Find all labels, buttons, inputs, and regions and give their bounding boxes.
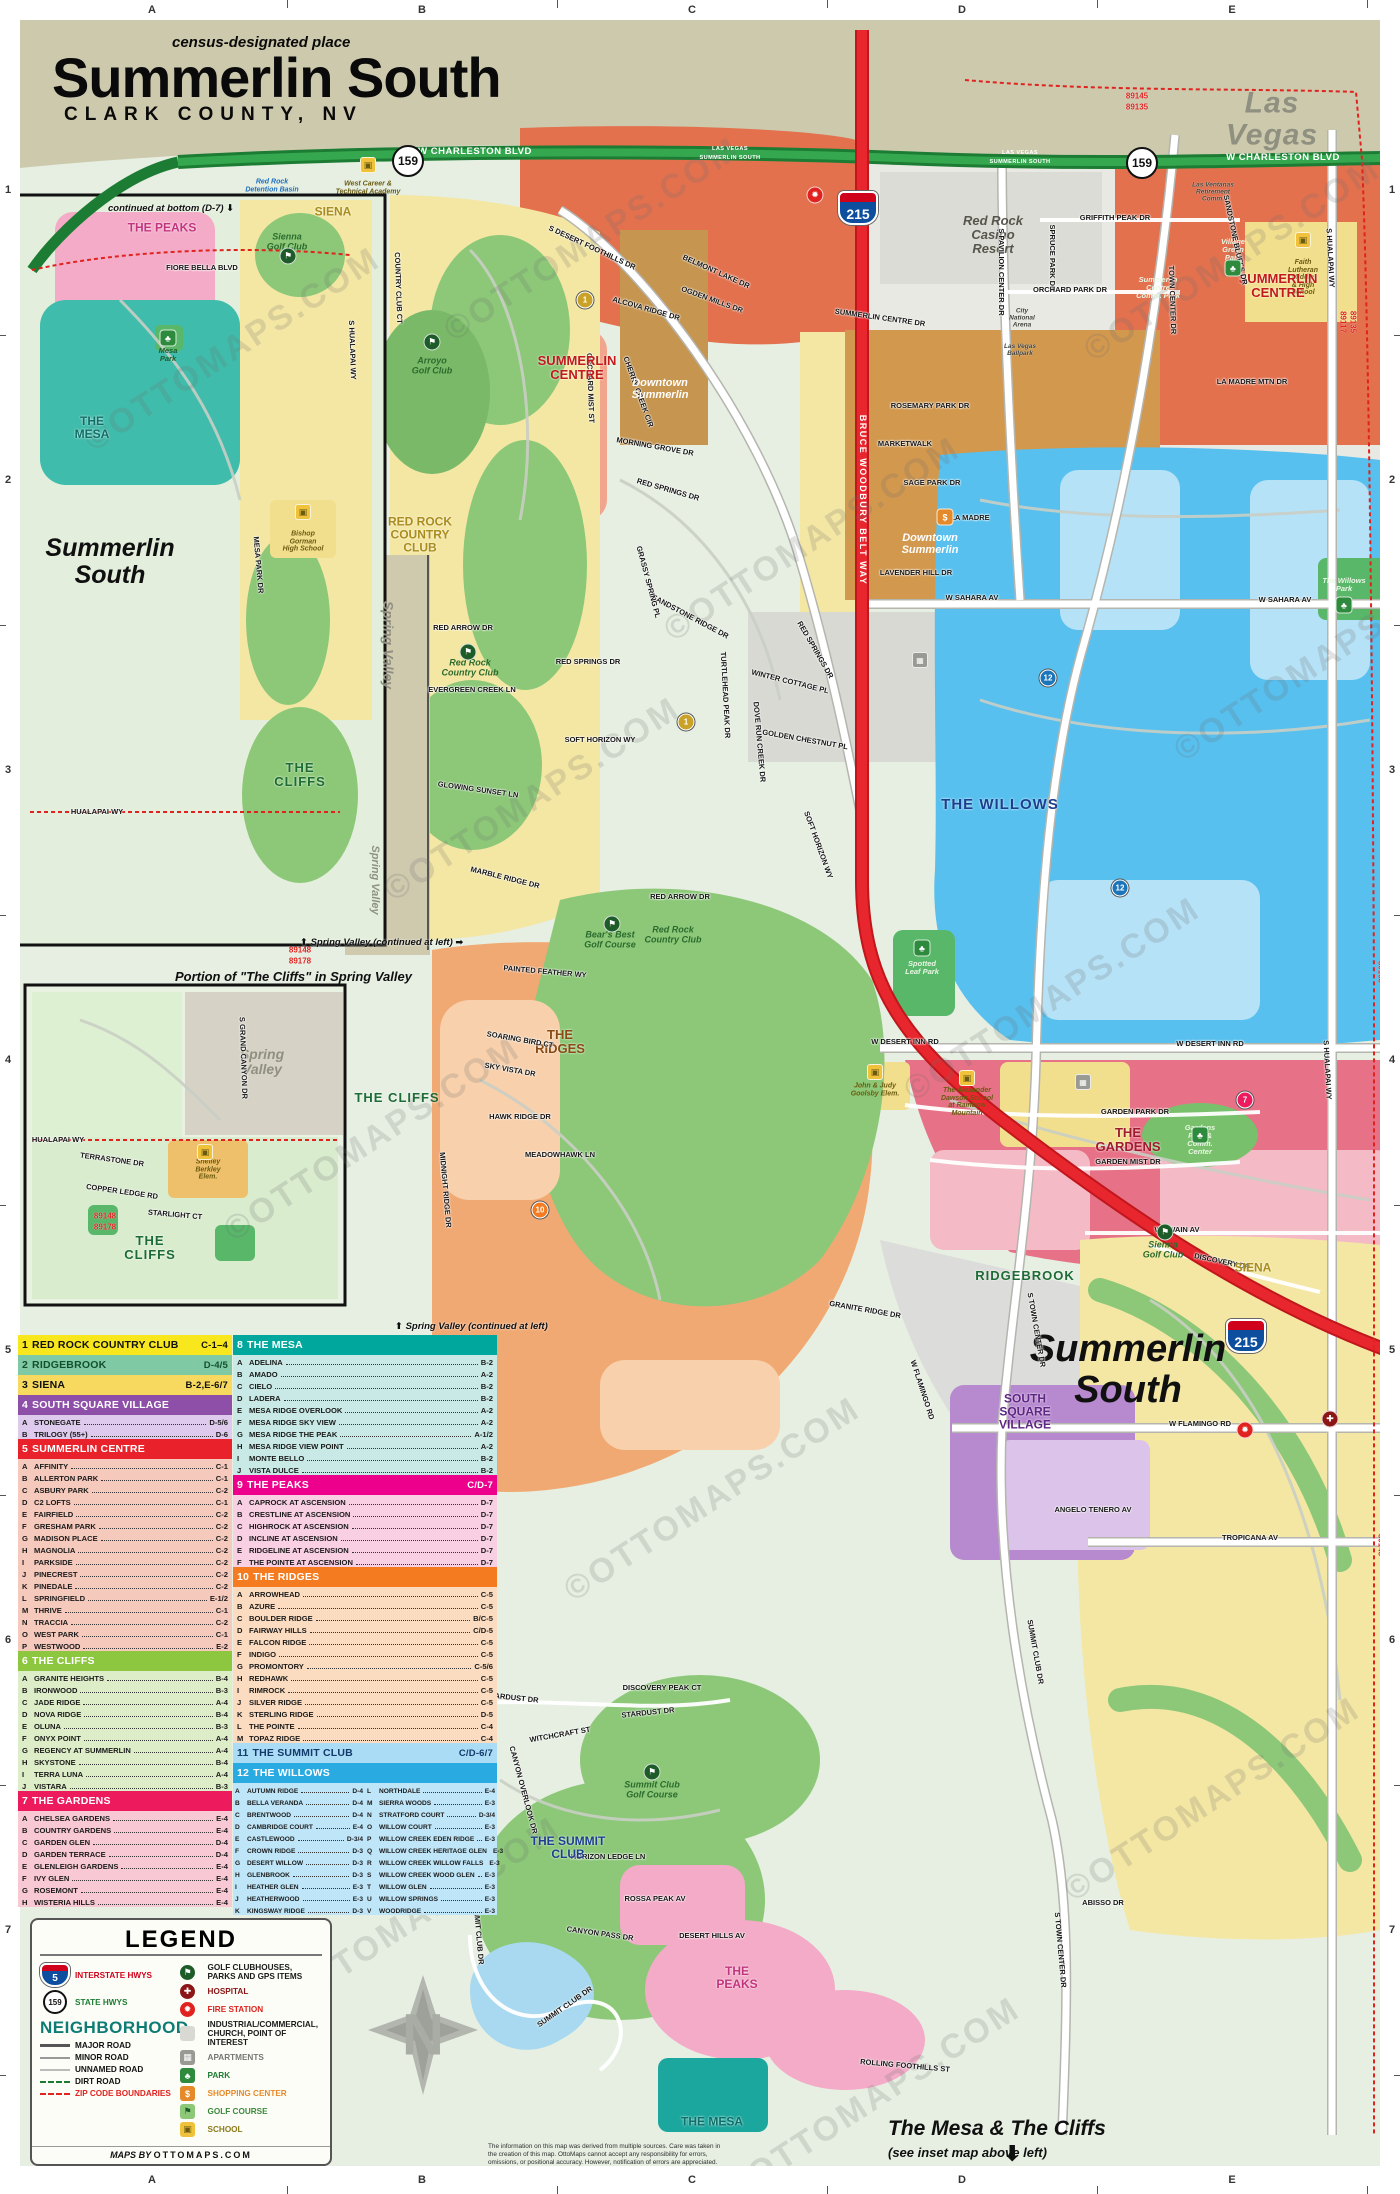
index-row: GPROMONTORYC-5/6 — [233, 1659, 497, 1671]
grid-number: 6 — [1389, 1634, 1395, 1646]
index-row: CJADE RIDGEA-4 — [18, 1695, 232, 1707]
compass-n-label: N — [402, 2002, 444, 2069]
index-row: GMADISON PLACEC-2 — [18, 1531, 232, 1543]
grid-number: 5 — [5, 1344, 11, 1356]
index-row: ACAPROCK AT ASCENSIOND-7 — [233, 1495, 497, 1507]
legend-item: ⚑GOLF COURSE — [173, 2104, 322, 2119]
legend-neighborhood-label: NEIGHBORHOOD — [40, 2018, 173, 2038]
index-row: EGLENLEIGH GARDENSE-4 — [18, 1859, 232, 1871]
grid-letter: A — [148, 4, 156, 16]
index-header: 2RIDGEBROOKD-4/5 — [18, 1355, 232, 1375]
legend-footer-brand: OTTOMAPS.COM — [154, 2150, 252, 2160]
index-row: FMESA RIDGE SKY VIEWA-2 — [233, 1415, 497, 1427]
legend-item: ♣PARK — [173, 2068, 322, 2083]
index-row: DGARDEN TERRACED-4 — [18, 1847, 232, 1859]
index-row: HREDHAWKC-5 — [233, 1671, 497, 1683]
index-row: HMESA RIDGE VIEW POINTA-2 — [233, 1439, 497, 1451]
index-row: CCIELOB-2 — [233, 1379, 497, 1391]
index-row: FIVY GLENE-4 — [18, 1871, 232, 1883]
legend-item: UNNAMED ROAD — [40, 2065, 173, 2074]
index-row: IHEATHER GLENE-3 — [233, 1879, 365, 1891]
index-row: EFALCON RIDGEC-5 — [233, 1635, 497, 1647]
index-row: ERIDGELINE AT ASCENSIOND-7 — [233, 1543, 497, 1555]
grid-letter: D — [958, 4, 966, 16]
index-row: JHEATHERWOODE-3 — [233, 1891, 365, 1903]
index-row: JPINECRESTC-2 — [18, 1567, 232, 1579]
index-header: 9THE PEAKSC/D-7 — [233, 1475, 497, 1495]
index-header: 3SIENAB-2,E-6/7 — [18, 1375, 232, 1395]
index-header: 8THE MESA — [233, 1335, 497, 1355]
index-block-5: 5SUMMERLIN CENTREAAFFINITYC-1BALLERTON P… — [18, 1439, 232, 1651]
page-title: Summerlin South — [52, 51, 501, 104]
index-block-6: 6THE CLIFFSAGRANITE HEIGHTSB-4BIRONWOODB… — [18, 1651, 232, 1791]
grid-number: 6 — [5, 1634, 11, 1646]
grid-number: 2 — [1389, 474, 1395, 486]
index-row: FINDIGOC-5 — [233, 1647, 497, 1659]
grid-number: 3 — [5, 764, 11, 776]
index-row: CGARDEN GLEND-4 — [18, 1835, 232, 1847]
index-row: ITERRA LUNAA-4 — [18, 1767, 232, 1779]
grid-number: 2 — [5, 474, 11, 486]
index-row: BCOUNTRY GARDENSE-4 — [18, 1823, 232, 1835]
index-row: PWILLOW CREEK EDEN RIDGEE-3 — [365, 1831, 497, 1843]
index-row: BALLERTON PARKC-1 — [18, 1471, 232, 1483]
index-row: AAFFINITYC-1 — [18, 1459, 232, 1471]
index-row: EOLUNAB-3 — [18, 1719, 232, 1731]
index-row: PWESTWOODE-2 — [18, 1639, 232, 1651]
grid-number: 3 — [1389, 764, 1395, 776]
index-row: HMAGNOLIAC-2 — [18, 1543, 232, 1555]
index-column-1: 1RED ROCK COUNTRY CLUBC-1–42RIDGEBROOKD-… — [18, 1335, 232, 1907]
index-column-2: 8THE MESAAADELINAB-2BAMADOA-2CCIELOB-2DL… — [233, 1335, 497, 1915]
index-block-2: 2RIDGEBROOKD-4/5 — [18, 1355, 232, 1375]
map-poster: ©OTTOMAPS.COM©OTTOMAPS.COM©OTTOMAPS.COM©… — [0, 0, 1400, 2194]
index-row: BIRONWOODB-3 — [18, 1683, 232, 1695]
index-block-7: 7THE GARDENSACHELSEA GARDENSE-4BCOUNTRY … — [18, 1791, 232, 1907]
grid-letter: C — [688, 2174, 696, 2186]
index-row: VWOODRIDGEE-3 — [365, 1903, 497, 1915]
grid-letter: E — [1228, 4, 1235, 16]
index-row: UWILLOW SPRINGSE-3 — [365, 1891, 497, 1903]
index-block-4: 4SOUTH SQUARE VILLAGEASTONEGATED-5/6BTRI… — [18, 1395, 232, 1439]
index-row: MSIERRA WOODSE-3 — [365, 1795, 497, 1807]
index-row: CHIGHROCK AT ASCENSIOND-7 — [233, 1519, 497, 1531]
grid-letter: E — [1228, 2174, 1235, 2186]
index-row: DNOVA RIDGEB-4 — [18, 1707, 232, 1719]
legend-title: LEGEND — [40, 1926, 322, 1956]
grid-letter: B — [418, 4, 426, 16]
index-row: KPINEDALEC-2 — [18, 1579, 232, 1591]
index-row: GMESA RIDGE THE PEAKA-1/2 — [233, 1427, 497, 1439]
index-row: DLADERAB-2 — [233, 1391, 497, 1403]
index-header: 1RED ROCK COUNTRY CLUBC-1–4 — [18, 1335, 232, 1355]
legend-item: DIRT ROAD — [40, 2077, 173, 2086]
index-row: BBELLA VERANDAD-4 — [233, 1795, 365, 1807]
index-row: ECASTLEWOODD-3/4 — [233, 1831, 365, 1843]
index-row: RWILLOW CREEK WILLOW FALLSE-3 — [365, 1855, 497, 1867]
frame-top — [0, 0, 1400, 20]
legend-item: ZIP CODE BOUNDARIES — [40, 2089, 173, 2098]
grid-letter: B — [418, 2174, 426, 2186]
index-row: GDESERT WILLOWD-3 — [233, 1855, 365, 1867]
index-row: MTHRIVEC-1 — [18, 1603, 232, 1615]
frame-bottom — [0, 2166, 1400, 2194]
index-block-3: 3SIENAB-2,E-6/7 — [18, 1375, 232, 1395]
grid-number: 1 — [1389, 184, 1395, 196]
index-row: FONYX POINTA-4 — [18, 1731, 232, 1743]
index-row: AARROWHEADC-5 — [233, 1587, 497, 1599]
index-block-12: 12THE WILLOWSAAUTUMN RIDGED-4BBELLA VERA… — [233, 1763, 497, 1915]
index-row: IPARKSIDEC-2 — [18, 1555, 232, 1567]
index-row: DFAIRWAY HILLSC/D-5 — [233, 1623, 497, 1635]
index-row: BTRILOGY (55+)D-6 — [18, 1427, 232, 1439]
grid-number: 1 — [5, 184, 11, 196]
index-block-1: 1RED ROCK COUNTRY CLUBC-1–4 — [18, 1335, 232, 1355]
legend-footer: MAPS BY OTTOMAPS.COM — [32, 2146, 330, 2160]
grid-number: 4 — [1389, 1054, 1395, 1066]
index-row: OWEST PARKC-1 — [18, 1627, 232, 1639]
index-row: SWILLOW CREEK WOOD GLENE-3 — [365, 1867, 497, 1879]
frame-left — [0, 0, 20, 2194]
index-row: EFAIRFIELDC-2 — [18, 1507, 232, 1519]
index-row: NSTRATFORD COURTD-3/4 — [365, 1807, 497, 1819]
index-row: CBOULDER RIDGEB/C-5 — [233, 1611, 497, 1623]
grid-number: 7 — [5, 1924, 11, 1936]
index-row: HGLENBROOKD-3 — [233, 1867, 365, 1879]
grid-number: 4 — [5, 1054, 11, 1066]
index-row: GREGENCY AT SUMMERLINA-4 — [18, 1743, 232, 1755]
index-row: AGRANITE HEIGHTSB-4 — [18, 1671, 232, 1683]
index-row: DC2 LOFTSC-1 — [18, 1495, 232, 1507]
legend-footer-pre: MAPS BY — [110, 2150, 151, 2160]
index-row: CASBURY PARKC-2 — [18, 1483, 232, 1495]
legend-item: ▦APARTMENTS — [173, 2050, 322, 2065]
index-row: GROSEMONTE-4 — [18, 1883, 232, 1895]
grid-number: 7 — [1389, 1924, 1395, 1936]
compass-rose: N — [368, 1975, 478, 2095]
legend-item: ▣SCHOOL — [173, 2122, 322, 2137]
index-row: IMONTE BELLOB-2 — [233, 1451, 497, 1463]
index-row: FTHE POINTE AT ASCENSIOND-7 — [233, 1555, 497, 1567]
legend-item: INDUSTRIAL/COMMERCIAL, CHURCH, POINT OF … — [173, 2020, 322, 2047]
index-row: BCRESTLINE AT ASCENSIOND-7 — [233, 1507, 497, 1519]
index-row: JVISTARAB-3 — [18, 1779, 232, 1791]
index-row: JSILVER RIDGEC-5 — [233, 1695, 497, 1707]
grid-letter: D — [958, 2174, 966, 2186]
index-row: AAUTUMN RIDGED-4 — [233, 1783, 365, 1795]
index-row: MTOPAZ RIDGEC-4 — [233, 1731, 497, 1743]
index-row: QWILLOW CREEK HERITAGE GLENE-3 — [365, 1843, 497, 1855]
index-row: LTHE POINTEC-4 — [233, 1719, 497, 1731]
index-row: KSTERLING RIDGED-5 — [233, 1707, 497, 1719]
index-header: 11THE SUMMIT CLUBC/D-6/7 — [233, 1743, 497, 1763]
index-row: CBRENTWOODD-4 — [233, 1807, 365, 1819]
index-row: LNORTHDALEE-4 — [365, 1783, 497, 1795]
index-row: NTRACCIAC-2 — [18, 1615, 232, 1627]
legend-item: ✹FIRE STATION — [173, 2002, 322, 2017]
index-row: KKINGSWAY RIDGED-3 — [233, 1903, 365, 1915]
index-row: ACHELSEA GARDENSE-4 — [18, 1811, 232, 1823]
index-header: 10THE RIDGES — [233, 1567, 497, 1587]
index-row: EMESA RIDGE OVERLOOKA-2 — [233, 1403, 497, 1415]
index-header: 5SUMMERLIN CENTRE — [18, 1439, 232, 1459]
index-block-8: 8THE MESAAADELINAB-2BAMADOA-2CCIELOB-2DL… — [233, 1335, 497, 1475]
index-row: DCAMBRIDGE COURTE-4 — [233, 1819, 365, 1831]
index-row: ASTONEGATED-5/6 — [18, 1415, 232, 1427]
index-row: OWILLOW COURTE-3 — [365, 1819, 497, 1831]
legend-item: 159STATE HWYS — [40, 1990, 173, 2014]
index-row: DINCLINE AT ASCENSIOND-7 — [233, 1531, 497, 1543]
index-row: BAMADOA-2 — [233, 1367, 497, 1379]
frame-right — [1380, 0, 1400, 2194]
index-row: TWILLOW GLENE-3 — [365, 1879, 497, 1891]
legend-item: MAJOR ROAD — [40, 2041, 173, 2050]
index-row: AADELINAB-2 — [233, 1355, 497, 1367]
index-header: 4SOUTH SQUARE VILLAGE — [18, 1395, 232, 1415]
legend-item: 5INTERSTATE HWYS — [40, 1963, 173, 1987]
legend-item: $SHOPPING CENTER — [173, 2086, 322, 2101]
index-header: 6THE CLIFFS — [18, 1651, 232, 1671]
grid-number: 5 — [1389, 1344, 1395, 1356]
index-header: 12THE WILLOWS — [233, 1763, 497, 1783]
index-row: LSPRINGFIELDE-1/2 — [18, 1591, 232, 1603]
legend: LEGEND 5INTERSTATE HWYS159STATE HWYSNEIG… — [30, 1918, 332, 2166]
legend-item: MINOR ROAD — [40, 2053, 173, 2062]
grid-letter: A — [148, 2174, 156, 2186]
index-block-9: 9THE PEAKSC/D-7ACAPROCK AT ASCENSIOND-7B… — [233, 1475, 497, 1567]
index-row: HSKYSTONEB-4 — [18, 1755, 232, 1767]
index-header: 7THE GARDENS — [18, 1791, 232, 1811]
index-row: FGRESHAM PARKC-2 — [18, 1519, 232, 1531]
title-block: census-designated place Summerlin South … — [52, 34, 501, 126]
legend-item: ⚑GOLF CLUBHOUSES, PARKS AND GPS ITEMS — [173, 1963, 322, 1981]
index-row: JVISTA DULCEB-2 — [233, 1463, 497, 1475]
index-block-11: 11THE SUMMIT CLUBC/D-6/7 — [233, 1743, 497, 1763]
index-row: HWISTERIA HILLSE-4 — [18, 1895, 232, 1907]
index-row: FCROWN RIDGED-3 — [233, 1843, 365, 1855]
index-row: BAZUREC-5 — [233, 1599, 497, 1611]
legend-item: ✚HOSPITAL — [173, 1984, 322, 1999]
index-block-10: 10THE RIDGESAARROWHEADC-5BAZUREC-5CBOULD… — [233, 1567, 497, 1743]
index-row: IRIMROCKC-5 — [233, 1683, 497, 1695]
grid-letter: C — [688, 4, 696, 16]
